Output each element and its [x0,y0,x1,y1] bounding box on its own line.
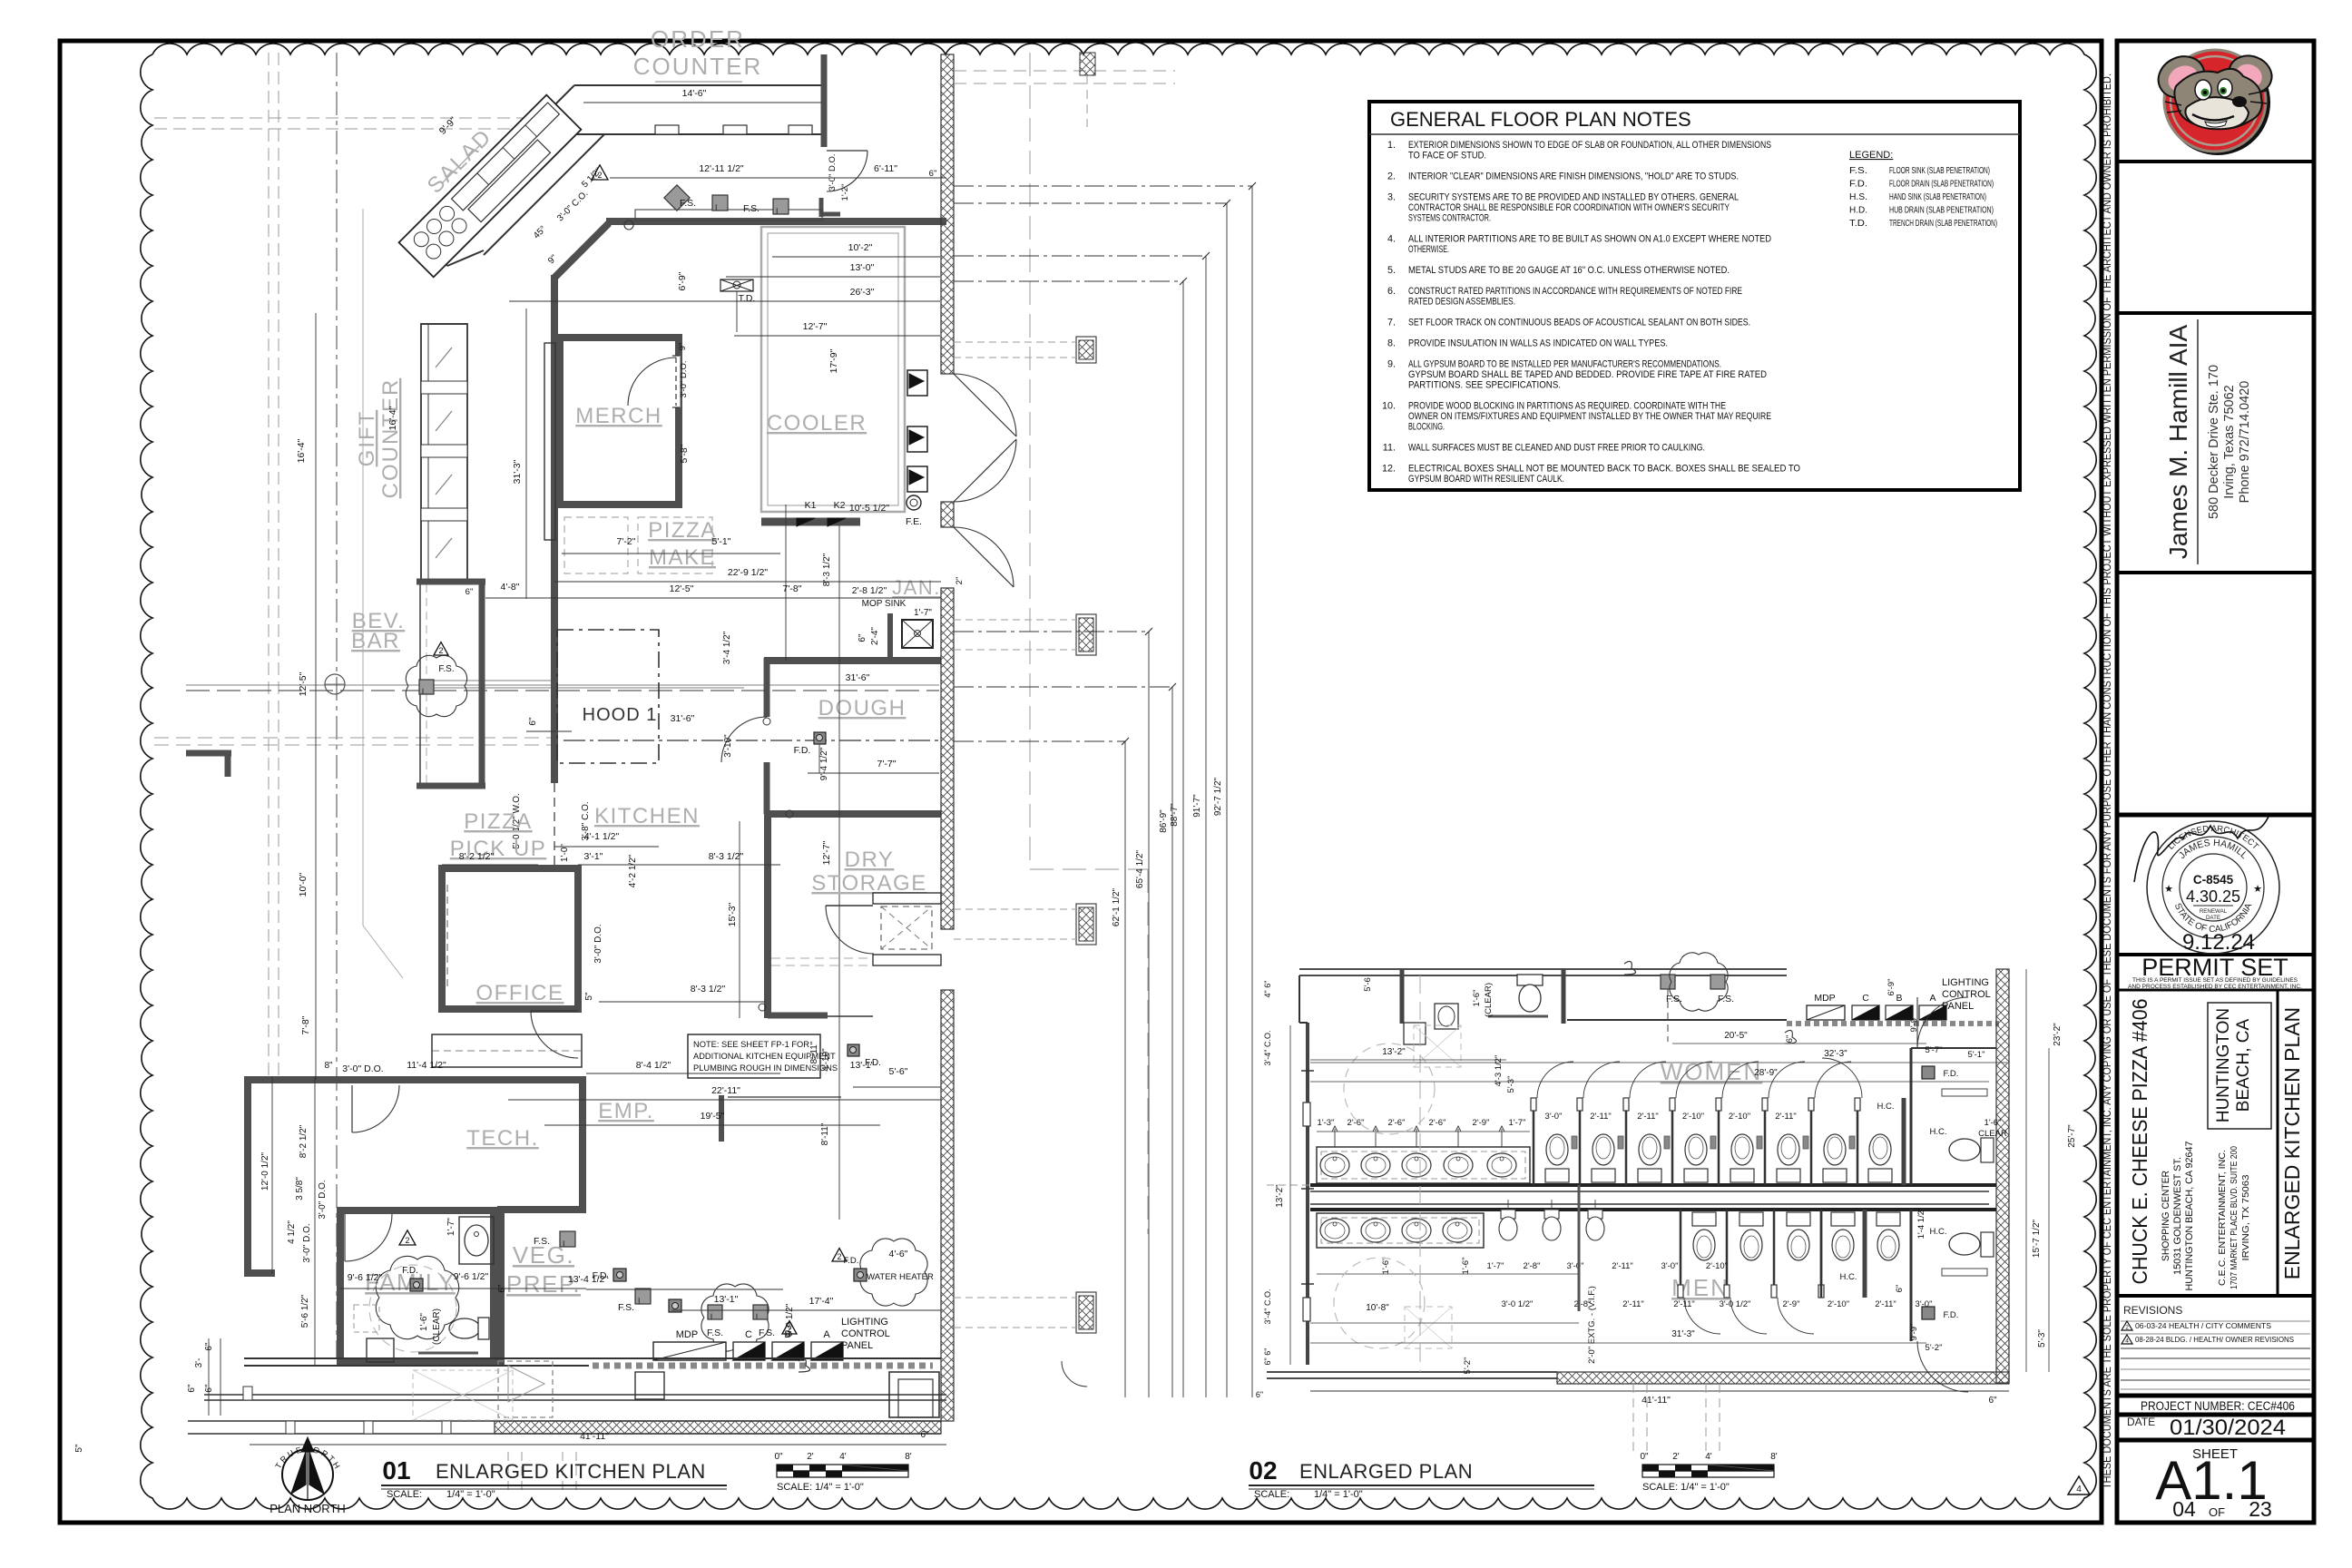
svg-text:FLOOR DRAIN (SLAB PENETRATION): FLOOR DRAIN (SLAB PENETRATION) [1889,180,1994,190]
svg-text:3'-0 1/2": 3'-0 1/2" [1720,1299,1751,1309]
svg-text:11.: 11. [1383,443,1396,454]
svg-text:88'-7": 88'-7" [1170,803,1180,827]
svg-text:F.S.: F.S. [680,198,696,209]
svg-text:13'-2": 13'-2" [1275,1184,1285,1208]
svg-text:PLUMBING ROUGH IN DIMENSIONS: PLUMBING ROUGH IN DIMENSIONS [693,1063,838,1073]
svg-text:3'-0" D.O.: 3'-0" D.O. [342,1063,383,1074]
svg-text:GIFT: GIFT [355,410,379,467]
svg-text:2'-6": 2'-6" [1388,1118,1406,1128]
svg-text:12'-5": 12'-5" [298,671,309,696]
svg-text:2: 2 [405,1236,409,1245]
svg-text:SCALE: 1/4" = 1'-0": SCALE: 1/4" = 1'-0" [777,1482,864,1493]
svg-text:F.S.: F.S. [707,1328,723,1338]
svg-text:01: 01 [382,1456,410,1485]
svg-text:SET FLOOR TRACK ON CONTINU: SET FLOOR TRACK ON CONTINUOUS BEADS OF A… [1408,318,1750,328]
svg-text:2'-11": 2'-11" [1612,1261,1633,1271]
svg-text:13'-4 1/2": 13'-4 1/2" [568,1274,609,1285]
svg-text:10'-2": 10'-2" [848,242,873,253]
svg-text:7'-8": 7'-8" [300,1015,311,1034]
svg-text:31'-6": 31'-6" [846,672,870,683]
svg-text:James M. Hamill AIA: James M. Hamill AIA [2164,325,2192,560]
svg-text:★: ★ [2253,884,2262,895]
svg-text:5'-2": 5'-2" [1463,1357,1473,1375]
svg-text:CONTROL: CONTROL [1942,989,1991,1000]
svg-text:HUB DRAIN (SLAB PENETRATION): HUB DRAIN (SLAB PENETRATION) [1889,206,1994,216]
svg-text:1'-6": 1'-6" [1461,1258,1471,1275]
svg-text:F.D.: F.D. [402,1266,418,1276]
svg-text:THIS IS A PERMIT ISSUE SET AS: THIS IS A PERMIT ISSUE SET AS DEFINED BY… [2132,977,2298,984]
svg-text:AND PROCESS ESTABLISHED BY: AND PROCESS ESTABLISHED BY CEC ENTERTAIN… [2128,984,2302,990]
svg-text:2": 2" [955,577,965,585]
svg-text:2: 2 [837,1252,841,1261]
svg-text:EXTERIOR DIMENSIONS SHOWN T: EXTERIOR DIMENSIONS SHOWN TO EDGE OF SLA… [1408,140,1771,151]
svg-text:3'-0" D.O.: 3'-0" D.O. [679,360,689,397]
svg-text:9'-9": 9'-9" [1909,1324,1919,1341]
svg-text:COUNTER: COUNTER [633,53,763,80]
svg-text:6'-9": 6'-9" [1886,979,1896,996]
svg-text:LIGHTING: LIGHTING [841,1317,888,1328]
svg-text:16'-4": 16'-4" [387,406,398,430]
svg-text:25'-7": 25'-7" [2067,1124,2077,1148]
svg-text:0": 0" [774,1452,783,1462]
svg-text:ENLARGED KITCHEN PLAN: ENLARGED KITCHEN PLAN [2280,1007,2304,1279]
svg-text:JAN.: JAN. [892,576,941,599]
svg-text:3'-4 1/2": 3'-4 1/2" [722,631,732,664]
svg-text:4 1/2": 4 1/2" [287,1220,297,1244]
svg-text:6": 6" [204,1342,214,1351]
svg-text:5'-3": 5'-3" [2037,1329,2047,1347]
svg-text:MDP: MDP [1814,993,1835,1004]
svg-text:22'-11": 22'-11" [711,1085,740,1096]
svg-text:B: B [784,1329,790,1340]
svg-text:★: ★ [2164,884,2173,895]
svg-text:4.30.25: 4.30.25 [2186,887,2240,906]
svg-text:9'-6 1/2": 9'-6 1/2" [454,1271,489,1282]
svg-text:LIGHTING: LIGHTING [1942,977,1989,988]
svg-text:OF: OF [2209,1505,2225,1519]
svg-text:17'-4": 17'-4" [809,1296,834,1307]
svg-text:2: 2 [438,646,443,655]
svg-text:6.: 6. [1387,286,1396,297]
svg-text:PROJECT NUMBER: CEC#406: PROJECT NUMBER: CEC#406 [2141,1399,2295,1413]
svg-text:2'-11": 2'-11" [1637,1112,1659,1122]
svg-text:(CLEAR): (CLEAR) [1484,983,1494,1017]
svg-text:23'-2": 23'-2" [2053,1023,2063,1046]
svg-text:2'-9": 2'-9" [1783,1299,1800,1309]
svg-text:5'-6 1/2": 5'-6 1/2" [300,1294,310,1328]
svg-text:6": 6" [1256,1390,1263,1399]
svg-text:SECURITY SYSTEMS ARE TO BE: SECURITY SYSTEMS ARE TO BE PROVIDED AND … [1408,192,1739,203]
svg-text:TRENCH DRAIN (SLAB PENETRATION: TRENCH DRAIN (SLAB PENETRATION) [1889,219,1997,229]
svg-text:PARTITIONS. SEE SPECIFIC: PARTITIONS. SEE SPECIFICATIONS. [1408,380,1561,391]
svg-text:H.C.: H.C. [1877,1102,1895,1112]
svg-text:B: B [1896,993,1902,1004]
svg-text:F.S.: F.S. [759,1328,775,1338]
svg-text:1'-2": 1'-2" [840,184,850,201]
svg-text:MAKE: MAKE [649,545,716,570]
svg-text:4.: 4. [1387,234,1396,245]
svg-text:41'-11": 41'-11" [1641,1395,1671,1406]
svg-text:28'-9": 28'-9" [1754,1068,1778,1078]
svg-text:1'-6": 1'-6" [1984,1118,2002,1128]
svg-text:15'-3": 15'-3" [727,902,738,926]
svg-text:6": 6" [1785,1035,1795,1044]
svg-text:16'-4": 16'-4" [296,438,307,463]
svg-text:PANEL: PANEL [841,1340,873,1351]
svg-text:WALL SURFACES MUST BE CLEA: WALL SURFACES MUST BE CLEANED AND DUST F… [1408,443,1705,454]
svg-text:T.D.: T.D. [1849,219,1867,229]
svg-text:OFFICE: OFFICE [476,981,564,1005]
svg-text:10'-0": 10'-0" [298,872,309,897]
svg-text:6'-11": 6'-11" [874,163,897,174]
svg-text:5'-2": 5'-2" [1926,1343,1943,1353]
svg-text:2'-8 1/2": 2'-8 1/2" [852,585,887,596]
svg-text:2.: 2. [1387,171,1396,182]
svg-text:5": 5" [74,1444,84,1453]
svg-text:10'-8": 10'-8" [1366,1303,1389,1313]
svg-text:3'-0 1/2": 3'-0 1/2" [1502,1299,1534,1309]
svg-text:9'-9": 9'-9" [1909,1015,1919,1033]
svg-text:RATED DESIGN ASSEMBLIES.: RATED DESIGN ASSEMBLIES. [1408,297,1515,308]
svg-text:3'-0" D.O.: 3'-0" D.O. [593,924,603,963]
svg-text:F.D.: F.D. [1944,1310,1959,1320]
svg-text:KITCHEN: KITCHEN [594,804,700,828]
svg-text:2'-6": 2'-6" [1429,1118,1446,1128]
svg-text:4': 4' [839,1452,847,1462]
svg-text:5.: 5. [1387,265,1396,276]
svg-text:4" 6": 4" 6" [1263,981,1272,998]
svg-text:10.: 10. [1382,401,1396,412]
svg-text:C.E.C. ENTERTAINMENT, INC.: C.E.C. ENTERTAINMENT, INC. [2218,1150,2228,1286]
svg-text:2'-11": 2'-11" [1775,1112,1797,1122]
svg-text:9'-6 1/2": 9'-6 1/2" [348,1272,383,1283]
svg-text:IRVING, TX 75063: IRVING, TX 75063 [2241,1174,2251,1260]
svg-text:2'-0" EXTG. - (V.I.F.): 2'-0" EXTG. - (V.I.F.) [1587,1286,1597,1364]
svg-text:CONSTRUCT RATED PARTITIONS: CONSTRUCT RATED PARTITIONS IN ACCORDANCE… [1408,286,1742,297]
svg-text:PIZZA: PIZZA [464,809,533,834]
svg-text:2': 2' [1672,1452,1680,1462]
svg-text:2'-11": 2'-11" [1673,1299,1695,1309]
svg-text:8'-11": 8'-11" [820,1122,830,1145]
svg-text:TECH.: TECH. [466,1126,539,1151]
svg-text:DATE: DATE [2127,1416,2155,1428]
svg-text:PROVIDE WOOD BLOCKING IN P: PROVIDE WOOD BLOCKING IN PARTITIONS AS R… [1408,401,1726,412]
svg-text:H.C.: H.C. [1930,1227,1947,1237]
svg-text:OWNER ON ITEMS/FIXTURES AND: OWNER ON ITEMS/FIXTURES AND EQUIPMENT IN… [1408,411,1771,422]
svg-text:6": 6" [1895,1285,1905,1293]
svg-text:4'-1 1/2": 4'-1 1/2" [584,831,620,842]
svg-text:3'-0": 3'-0" [1661,1261,1679,1271]
svg-text:8": 8" [324,1061,333,1071]
svg-text:12.: 12. [1382,464,1396,475]
svg-text:2'-11": 2'-11" [1622,1299,1644,1309]
svg-text:F.D.: F.D. [1944,1069,1959,1079]
svg-text:CHUCK E. CHEESE PIZZA #406: CHUCK E. CHEESE PIZZA #406 [2128,999,2151,1285]
svg-text:6": 6" [497,1284,507,1293]
svg-text:12'-7": 12'-7" [803,321,828,332]
svg-text:F.S.: F.S. [534,1236,550,1247]
svg-text:5'-8": 5'-8" [679,444,690,463]
svg-text:BAR: BAR [351,629,400,653]
svg-text:ELECTRICAL BOXES SHALL NOT: ELECTRICAL BOXES SHALL NOT BE MOUNTED BA… [1408,464,1800,475]
svg-text:SYSTEMS CONTRACTOR.: SYSTEMS CONTRACTOR. [1408,213,1491,224]
svg-text:6" 6": 6" 6" [1263,1348,1272,1366]
svg-text:TO FACE OF STUD.: TO FACE OF STUD. [1408,151,1486,162]
svg-text:8': 8' [1770,1452,1778,1462]
svg-text:26'-3": 26'-3" [850,287,875,298]
svg-text:3'-1": 3'-1" [584,851,603,862]
svg-text:8'-2 1/2": 8'-2 1/2" [299,1124,309,1158]
svg-text:3'-0" D.O.: 3'-0" D.O. [828,153,838,191]
svg-text:4'-2 1/2": 4'-2 1/2" [628,854,638,887]
svg-text:9.12.24: 9.12.24 [2182,930,2255,955]
svg-text:12'-7": 12'-7" [821,840,832,865]
svg-text:12'-11 1/2": 12'-11 1/2" [699,163,744,174]
svg-text:H.D.: H.D. [1849,206,1867,216]
svg-text:EMP.: EMP. [598,1099,654,1123]
svg-text:C-8545: C-8545 [2193,873,2234,887]
svg-text:4': 4' [1705,1452,1712,1462]
svg-text:5'-1": 5'-1" [712,536,731,547]
svg-text:6": 6" [929,169,937,179]
svg-text:3'-4" C.O.: 3'-4" C.O. [1263,1031,1272,1066]
svg-text:F.S.: F.S. [1718,994,1734,1004]
svg-text:8'-3 1/2": 8'-3 1/2" [709,851,744,862]
svg-text:23: 23 [2249,1497,2272,1521]
svg-text:7'-8": 7'-8" [783,583,802,594]
svg-text:ENLARGED KITCHEN PLAN: ENLARGED KITCHEN PLAN [436,1460,706,1483]
svg-text:T.D.: T.D. [739,293,756,304]
svg-text:GENERAL FLOOR PLAN NOTES: GENERAL FLOOR PLAN NOTES [1390,108,1691,131]
svg-text:BEACH, CA: BEACH, CA [2234,1018,2253,1112]
svg-text:F.S.: F.S. [1666,994,1682,1004]
svg-text:ALL GYPSUM BOARD TO BE IN: ALL GYPSUM BOARD TO BE INSTALLED PER MAN… [1408,359,1721,370]
svg-text:HAND SINK (SLAB PENETRATION): HAND SINK (SLAB PENETRATION) [1889,192,1986,202]
svg-text:6": 6" [187,1384,197,1393]
svg-text:LEGEND:: LEGEND: [1849,150,1893,161]
svg-text:8'-3 1/2": 8'-3 1/2" [691,984,726,995]
svg-text:8.: 8. [1387,338,1396,349]
svg-text:WATER HEATER: WATER HEATER [867,1272,934,1282]
svg-text:F.D.: F.D. [794,745,811,756]
svg-text:17'-9": 17'-9" [828,348,839,373]
svg-text:2'-8": 2'-8" [1524,1261,1541,1271]
svg-text:9": 9" [678,343,688,351]
svg-text:6": 6" [528,717,538,726]
svg-text:F.S.: F.S. [618,1302,634,1313]
svg-text:86'-9": 86'-9" [1159,809,1169,833]
svg-text:2'-4": 2'-4" [870,627,880,645]
svg-text:32'-3": 32'-3" [1824,1049,1847,1059]
svg-text:SCALE: 1/4" = 1'-0": SCALE: 1/4" = 1'-0" [1642,1482,1730,1493]
svg-text:31'-6": 31'-6" [671,713,695,724]
svg-text:MERCH: MERCH [575,404,662,428]
svg-text:2': 2' [807,1452,814,1462]
svg-text:7.: 7. [1387,318,1396,328]
svg-text:92'-7 1/2": 92'-7 1/2" [1213,777,1223,816]
svg-text:STORAGE: STORAGE [811,871,926,896]
svg-text:PLAN NORTH: PLAN NORTH [269,1502,346,1515]
svg-text:06-03-24 HEALTH / CITY COMMENT: 06-03-24 HEALTH / CITY COMMENTS [2135,1321,2271,1330]
svg-text:DOUGH: DOUGH [818,696,906,720]
svg-text:PANEL: PANEL [1942,1001,1974,1012]
svg-text:A: A [1929,993,1935,1004]
svg-text:F.D.: F.D. [1849,180,1867,190]
svg-text:ALL INTERIOR PARTITIONS ARE: ALL INTERIOR PARTITIONS ARE TO BE BUILT … [1408,234,1771,245]
svg-text:6": 6" [465,587,474,597]
svg-text:1'-6": 1'-6" [1381,1258,1391,1275]
svg-text:CONTRACTOR SHALL BE RESPONS: CONTRACTOR SHALL BE RESPONSIBLE FOR COOR… [1408,202,1730,213]
svg-text:8'-4 1/2": 8'-4 1/2" [636,1060,671,1071]
svg-text:PIZZA: PIZZA [648,518,717,543]
svg-text:PROVIDE INSULATION IN WALLS: PROVIDE INSULATION IN WALLS AS INDICATED… [1408,338,1668,349]
svg-text:4'-6": 4'-6" [889,1249,908,1259]
svg-text:6": 6" [204,1384,214,1393]
svg-text:6'-9": 6'-9" [677,271,688,290]
svg-text:10'-5 1/2": 10'-5 1/2" [849,503,890,514]
svg-text:4'-8": 4'-8" [501,582,520,593]
svg-text:22'-9 1/2": 22'-9 1/2" [728,567,769,578]
svg-text:3'-0": 3'-0" [1916,1299,1933,1309]
svg-text:3.: 3. [1387,192,1396,203]
svg-text:1'-4 1/2": 1'-4 1/2" [1916,1208,1926,1240]
svg-text:HUNTINGTON BEACH, CA 92647: HUNTINGTON BEACH, CA 92647 [2184,1142,2195,1291]
svg-text:1'-7": 1'-7" [914,608,932,618]
svg-text:2'-11": 2'-11" [1875,1299,1896,1309]
svg-text:13'-1": 13'-1" [850,1060,875,1071]
svg-text:3'-0": 3'-0" [1567,1261,1584,1271]
svg-text:19'-5": 19'-5" [701,1111,725,1122]
svg-text:F.E.: F.E. [906,516,922,527]
svg-text:6": 6" [920,1430,929,1440]
svg-text:4: 4 [2076,1485,2082,1494]
svg-text:5": 5" [584,992,594,1001]
svg-text:01/30/2024: 01/30/2024 [2170,1416,2286,1440]
svg-text:62'-1 1/2": 62'-1 1/2" [1112,887,1122,926]
svg-text:3 5/8": 3 5/8" [295,1177,305,1200]
svg-text:3'-0" D.O.: 3'-0" D.O. [302,1223,312,1262]
svg-text:HOOD 1: HOOD 1 [583,705,658,725]
svg-text:DRY: DRY [845,848,895,872]
svg-text:11'-4 1/2": 11'-4 1/2" [407,1060,446,1071]
svg-text:RENEWAL: RENEWAL [2200,908,2228,915]
svg-text:13'-2": 13'-2" [1382,1047,1406,1057]
svg-text:F.S.: F.S. [1849,166,1867,176]
svg-text:Irving, Texas 75062: Irving, Texas 75062 [2222,385,2237,498]
svg-text:METAL STUDS ARE TO BE 20: METAL STUDS ARE TO BE 20 GAUGE AT 16" O.… [1408,265,1730,276]
svg-text:1/4" = 1'-0": 1/4" = 1'-0" [1314,1489,1363,1500]
svg-text:1'-6": 1'-6" [419,1313,429,1331]
svg-text:9.: 9. [1387,359,1396,370]
svg-text:REVISIONS: REVISIONS [2123,1304,2182,1317]
svg-text:5'-6: 5'-6 [1363,977,1373,992]
svg-text:INTERIOR "CLEAR" DIMENSIONS: INTERIOR "CLEAR" DIMENSIONS ARE FINISH D… [1408,171,1739,182]
svg-text:65'-4 1/2": 65'-4 1/2" [1135,849,1145,888]
svg-text:04: 04 [2172,1497,2196,1521]
svg-text:1'-7": 1'-7" [1487,1261,1504,1271]
svg-text:SCALE:: SCALE: [387,1489,422,1500]
svg-text:6": 6" [857,633,867,642]
svg-text:H.C.: H.C. [1930,1127,1947,1137]
svg-text:14'-6": 14'-6" [682,88,707,99]
svg-text:C: C [1862,993,1869,1004]
svg-text:580 Decker Drive Ste. 170: 580 Decker Drive Ste. 170 [2207,365,2221,519]
svg-text:7'-7": 7'-7" [877,759,897,769]
svg-text:1'-6": 1'-6" [1472,990,1482,1007]
svg-text:HUNTINGTON: HUNTINGTON [2214,1008,2233,1122]
svg-text:8'-11": 8'-11" [809,1041,819,1063]
svg-text:15'-7 1/2": 15'-7 1/2" [2032,1219,2042,1258]
svg-text:7'-2": 7'-2" [617,536,636,547]
svg-text:1707 MARKET PLACE BLVD. SUITE: 1707 MARKET PLACE BLVD. SUITE 200 [2229,1146,2239,1289]
svg-text:H.C.: H.C. [1840,1272,1857,1282]
svg-text:F.S.: F.S. [743,203,759,214]
svg-text:F.S.: F.S. [438,664,454,674]
svg-text:K2: K2 [834,500,846,511]
svg-text:C: C [745,1329,752,1340]
svg-text:MOP SINK: MOP SINK [862,599,906,609]
svg-text:13'-0": 13'-0" [850,262,875,273]
svg-text:BLOCKING.: BLOCKING. [1408,422,1445,433]
svg-text:CONTROL: CONTROL [841,1328,890,1339]
svg-text:3'-10": 3'-10" [723,734,733,758]
svg-text:4'-3 1/2": 4'-3 1/2" [1494,1055,1504,1087]
svg-text:3'-4" C.O.: 3'-4" C.O. [1263,1289,1272,1325]
svg-text:SCALE:: SCALE: [1254,1489,1289,1500]
svg-text:1.: 1. [1387,140,1396,151]
svg-text:1'-3": 1'-3" [1318,1118,1335,1128]
svg-text:12'-0 1/2": 12'-0 1/2" [260,1151,270,1191]
svg-text:1/4" = 1'-0": 1/4" = 1'-0" [446,1489,495,1500]
svg-text:3'-0": 3'-0" [1545,1112,1563,1122]
svg-text:THESE DOCUMENTS ARE THE SOLE P: THESE DOCUMENTS ARE THE SOLE PROPERTY OF… [2101,73,2113,1489]
svg-text:2'-9": 2'-9" [1473,1118,1490,1128]
svg-text:2'-11": 2'-11" [1590,1112,1612,1122]
svg-text:ENLARGED PLAN: ENLARGED PLAN [1299,1460,1473,1483]
svg-text:(CLEAR): (CLEAR) [432,1308,442,1345]
svg-text:K1: K1 [805,500,817,511]
svg-text:41'-11": 41'-11" [580,1431,609,1442]
svg-text:31'-3": 31'-3" [512,459,523,484]
svg-text:COOLER: COOLER [767,411,867,436]
svg-text:CLEAR: CLEAR [1978,1129,2007,1139]
svg-text:2'-10": 2'-10" [1729,1112,1750,1122]
svg-text:Phone 972/714.0420: Phone 972/714.0420 [2238,381,2252,504]
svg-text:8'-2 1/2": 8'-2 1/2" [459,851,495,862]
svg-text:6": 6" [1988,1396,1997,1406]
svg-text:OTHERWISE.: OTHERWISE. [1408,244,1449,255]
svg-text:SHOPPING CENTER: SHOPPING CENTER [2161,1171,2171,1261]
svg-text:2'-10": 2'-10" [1706,1261,1728,1271]
svg-text:1'-7": 1'-7" [1509,1118,1526,1128]
svg-text:3'-: 3'- [194,1358,204,1368]
svg-text:91'-7": 91'-7" [1192,794,1202,818]
svg-text:COUNTER: COUNTER [378,378,403,499]
svg-text:15031 GOLDENWEST ST.: 15031 GOLDENWEST ST. [2172,1157,2183,1275]
svg-text:4: 4 [2125,1338,2129,1345]
svg-text:5'-7": 5'-7" [1926,1045,1943,1055]
svg-text:5'-3": 5'-3" [1506,1076,1516,1093]
svg-text:2'-10": 2'-10" [1828,1299,1849,1309]
svg-text:02: 02 [1249,1456,1277,1485]
svg-text:NOTE: SEE SHEET FP-1 FOR: NOTE: SEE SHEET FP-1 FOR [693,1040,809,1049]
svg-text:0": 0" [1640,1452,1649,1462]
svg-text:8': 8' [905,1452,912,1462]
svg-text:H.S.: H.S. [1849,192,1867,202]
svg-text:3'-0" D.O.: 3'-0" D.O. [318,1180,328,1219]
svg-text:1'-7": 1'-7" [446,1218,456,1236]
svg-text:20'-5": 20'-5" [1724,1031,1748,1041]
